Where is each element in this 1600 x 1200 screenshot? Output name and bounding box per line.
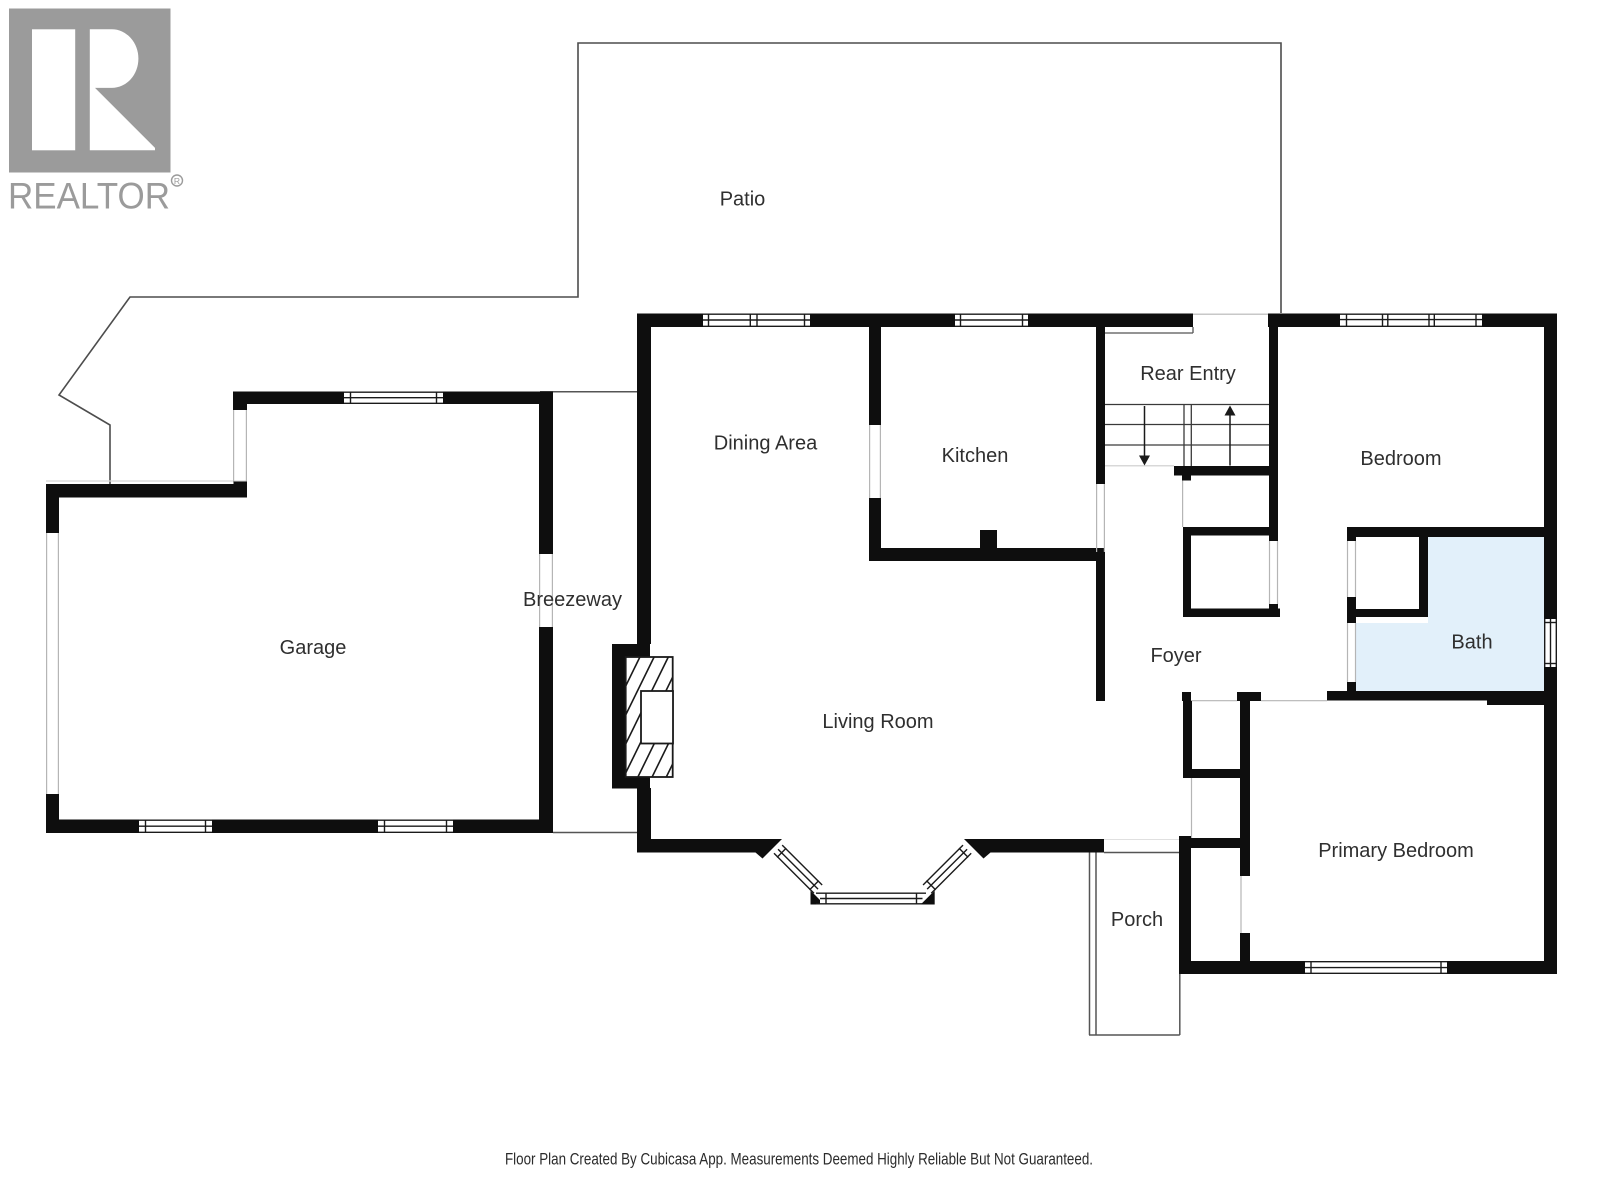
svg-text:Bedroom: Bedroom bbox=[1360, 448, 1441, 470]
svg-text:R: R bbox=[174, 176, 180, 186]
svg-text:Breezeway: Breezeway bbox=[523, 589, 622, 611]
svg-text:Primary Bedroom: Primary Bedroom bbox=[1318, 840, 1474, 862]
svg-text:Rear Entry: Rear Entry bbox=[1140, 363, 1236, 385]
svg-text:Dining Area: Dining Area bbox=[714, 433, 818, 455]
svg-text:Floor Plan Created By Cubicasa: Floor Plan Created By Cubicasa App. Meas… bbox=[505, 1151, 1093, 1169]
svg-text:Living Room: Living Room bbox=[822, 711, 933, 733]
svg-text:Kitchen: Kitchen bbox=[942, 445, 1009, 467]
svg-text:Garage: Garage bbox=[280, 637, 347, 659]
svg-text:Bath: Bath bbox=[1451, 632, 1492, 654]
svg-text:Porch: Porch bbox=[1111, 909, 1163, 931]
svg-text:Foyer: Foyer bbox=[1150, 645, 1201, 667]
svg-text:Patio: Patio bbox=[720, 189, 766, 211]
svg-text:REALTOR: REALTOR bbox=[8, 175, 170, 217]
